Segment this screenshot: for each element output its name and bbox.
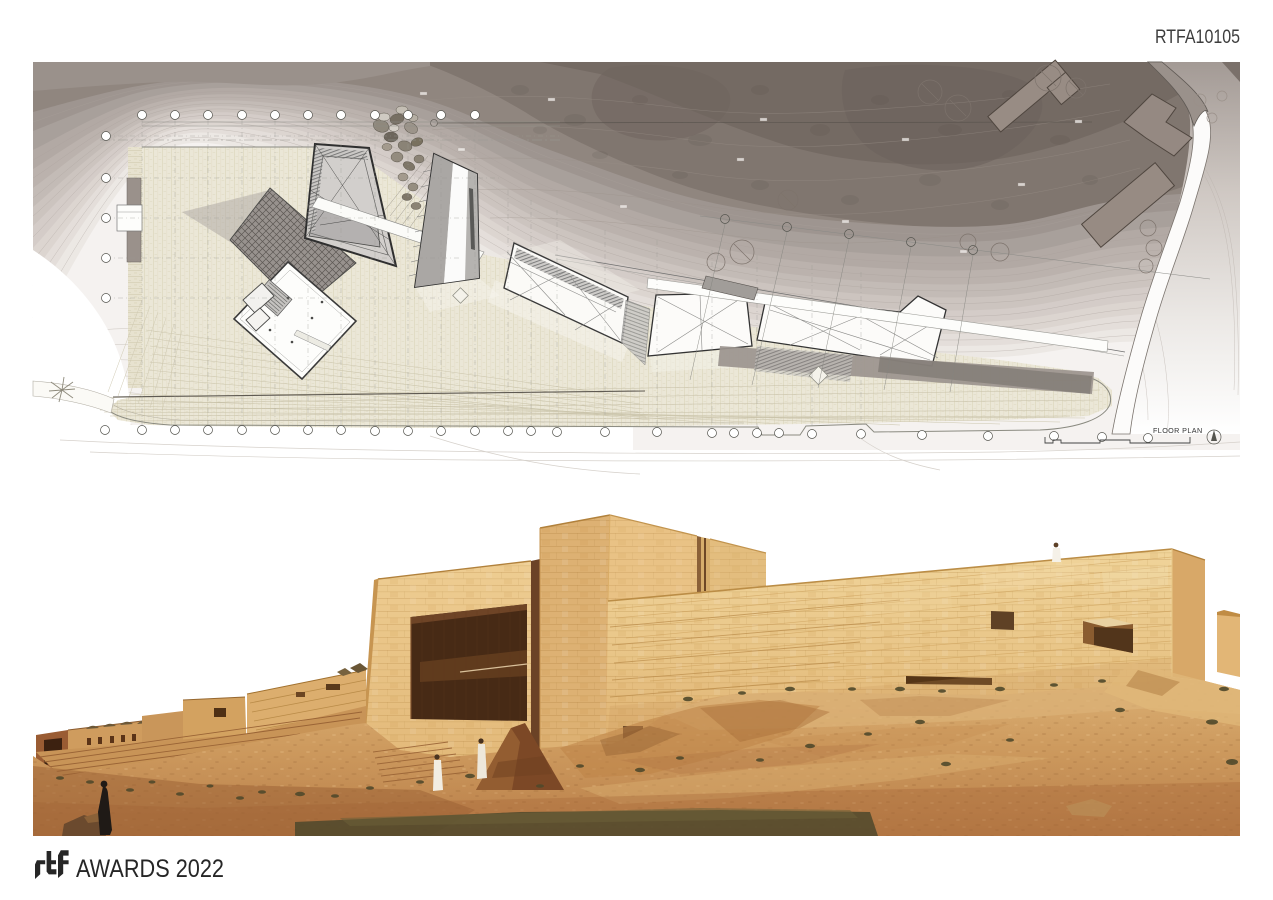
svg-text:AWARDS 2022: AWARDS 2022 [76,855,224,883]
svg-text:RTFA10105: RTFA10105 [1155,27,1240,48]
svg-text:FLOOR PLAN: FLOOR PLAN [1153,426,1203,435]
